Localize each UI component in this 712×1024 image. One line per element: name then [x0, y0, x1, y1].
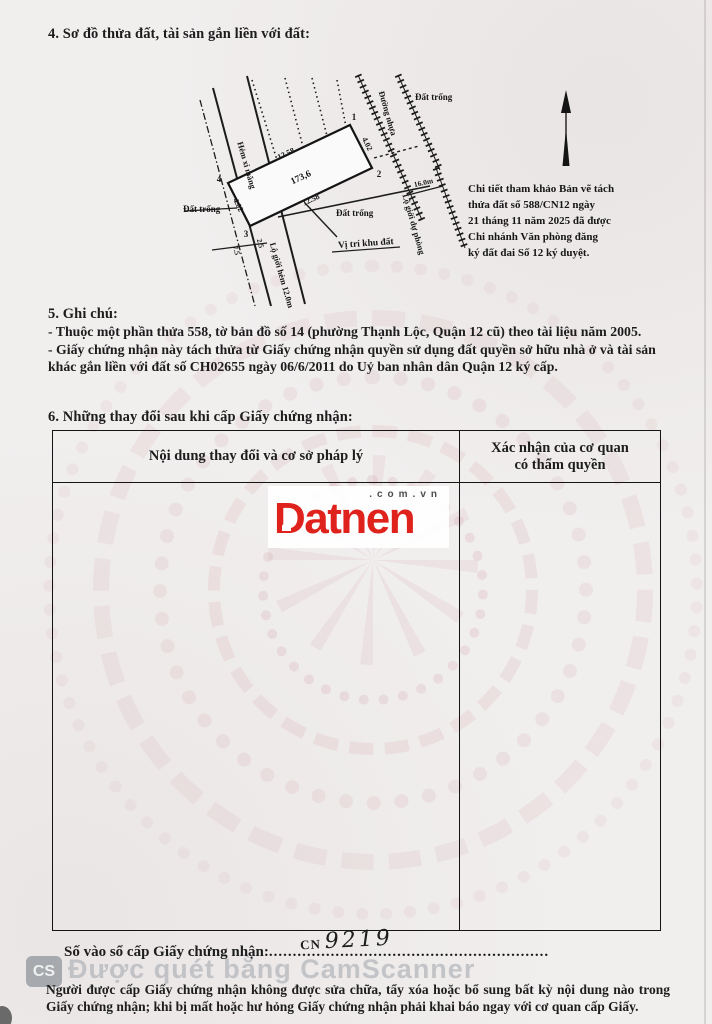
- scanned-land-certificate-page: 4. Sơ đồ thửa đất, tài sản gắn liền với …: [0, 0, 712, 1024]
- reserve-boundary-edge: [436, 168, 465, 248]
- empty-land-mid-label: Đất trống: [336, 208, 374, 218]
- location-label: Vị trí khu đất: [338, 236, 395, 251]
- empty-land-top-label: Đất trống: [415, 92, 453, 102]
- diagram-note-line: 21 tháng 11 năm 2025 đã được: [468, 215, 611, 227]
- table-header-content: Nội dung thay đổi và cơ sở pháp lý: [53, 431, 459, 483]
- plot-corner-4: 4: [217, 174, 222, 184]
- dotted-boundary: [337, 80, 346, 127]
- diagram-note-line: Chi tiết tham khảo Bản vẽ tách: [468, 183, 614, 195]
- section5-notes: 5. Ghi chú: - Thuộc một phần thửa 558, t…: [48, 306, 668, 376]
- plot-corner-3: 3: [244, 229, 249, 239]
- north-arrow-head: [561, 90, 571, 113]
- section5-title: 5. Ghi chú:: [48, 306, 668, 323]
- dashed-tie-line: [374, 146, 419, 158]
- diagram-note-line: ký đất đai Số 12 ký duyệt.: [468, 247, 590, 259]
- section5-item: - Thuộc một phần thửa 558, tờ bản đồ số …: [48, 323, 668, 341]
- cadastral-diagram: 12.58 173,6 12.58 4.02 4.02 1 2 3 4 Hẻm …: [15, 70, 697, 318]
- serial-prefix: CN: [300, 936, 322, 952]
- measure-2-5: 2.5: [255, 238, 266, 250]
- table-body-content-cell: [53, 483, 459, 930]
- serial-number: 9219: [324, 926, 393, 955]
- scan-corner-artifact: [0, 1006, 12, 1024]
- datnen-brand-text: Datnen: [274, 497, 414, 541]
- dotted-boundary: [285, 78, 303, 147]
- diagram-note-line: Chi nhánh Văn phòng đăng: [468, 231, 599, 243]
- table-header-confirmation-line1: Xác nhận của cơ quan: [491, 440, 629, 457]
- measure-7-5: 7.5: [231, 245, 242, 257]
- road-edge: [398, 75, 440, 170]
- section4-title: 4. Sơ đồ thửa đất, tài sản gắn liền với …: [48, 26, 310, 43]
- dotted-boundary: [312, 78, 327, 136]
- north-arrow-tail: [563, 128, 570, 166]
- diagram-note-line: thửa đất số 588/CN12 ngày: [468, 199, 596, 211]
- datnen-logo: .com.vn Datnen: [268, 486, 449, 548]
- table-body-confirmation-cell: [459, 483, 660, 930]
- table-header-confirmation: Xác nhận của cơ quan có thẩm quyền: [459, 431, 660, 483]
- serial-handwritten-value: CN 9219: [299, 926, 393, 956]
- serial-label: Số vào sổ cấp Giấy chứng nhận:: [64, 944, 269, 960]
- footer-notice: Người được cấp Giấy chứng nhận không đượ…: [46, 982, 670, 1015]
- plot-corner-2: 2: [377, 169, 382, 179]
- empty-land-left-label: Đất trống: [183, 204, 221, 214]
- plot-corner-1: 1: [352, 112, 357, 122]
- table-header-confirmation-line2: có thẩm quyền: [491, 457, 629, 474]
- section5-item: - Giấy chứng nhận này tách thửa từ Giấy …: [48, 341, 668, 376]
- section6-title: 6. Những thay đổi sau khi cấp Giấy chứng…: [48, 409, 353, 426]
- scan-edge-shadow: [704, 0, 706, 1024]
